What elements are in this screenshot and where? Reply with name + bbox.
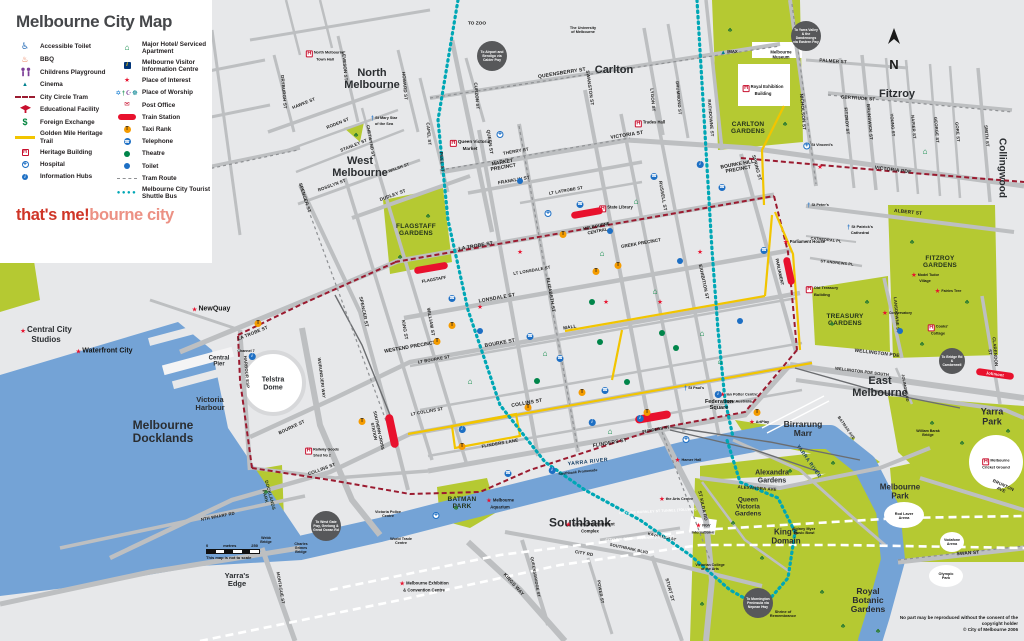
star-icon: ★ (882, 312, 888, 316)
direction-bubble-to-mornington-peninsula-via-nepean-hwy: To Mornington Peninsula via Nepean Hwy (743, 588, 773, 618)
tree-icon: ♣ (454, 497, 459, 515)
legend-item-label: Accessible Toilet (40, 43, 91, 50)
street-label-king-st: KING ST (400, 320, 408, 340)
legend-item-cinema: ▲Cinema (14, 81, 110, 90)
telephone-icon: ☎ (577, 192, 584, 210)
district-label-collingwood: Collingwood (996, 138, 1007, 198)
taxi-rank-icon: T (525, 395, 532, 413)
station-label-flinders-st: Flinders St (642, 425, 670, 434)
legend-item-post-office: ✉Post Office (116, 101, 212, 110)
direction-bubble-to-west-gate-fwy-geelong-great-ocean-rd: To West Gate Fwy, Geelong & Great Ocean … (311, 511, 341, 541)
place-of-interest-icon: ★ (817, 156, 823, 174)
legend-item-label: BBQ (40, 56, 54, 63)
district-label-alexandra-gardens: Alexandra Gardens (755, 469, 789, 484)
thats-melbourne-logo: that's me!bourne city (16, 206, 174, 225)
tree-icon: ♣ (930, 412, 935, 430)
poi-label-melbourne-cricket-ground: HMelbourne Cricket Ground (982, 458, 1010, 469)
park-label-batman-park: Batman Park (448, 496, 477, 510)
direction-bubble-to-yarra-valley-the-dandenongs-via-easte: To Yarra Valley & the Dandenongs via Eas… (791, 21, 821, 51)
street-label-power-st: POWER ST (596, 580, 605, 604)
tree-icon: ♣ (264, 481, 269, 499)
street-label-lt-lonsdale-st: LT LONSDALE ST (513, 266, 551, 277)
train-station-pill-flagstaff (414, 262, 449, 275)
toilet-icon (517, 171, 523, 189)
station-label-southern-cross-station: Southern Cross Station (367, 411, 384, 452)
poi-label-railway-goods-shed-no-2: HRailway Goods Shed No 2 (305, 448, 339, 459)
district-label-central-pier: Central Pier (209, 356, 230, 369)
poi-label-shrine-of-remembrance: Shrine of Remembrance (770, 610, 796, 618)
legend-item-educational-facility: Educational Facility (14, 105, 110, 114)
legend-item-label: Major Hotel/ Serviced Apartment (142, 41, 212, 55)
church-icon: † (807, 204, 810, 208)
tree-icon: ♣ (731, 512, 736, 530)
telephone-icon: ☎ (651, 164, 658, 182)
hospital-icon: ✚ (433, 503, 440, 521)
legend-item-major-hotel-serviced-apartment: ⌂Major Hotel/ Serviced Apartment (116, 41, 212, 55)
taxi-rank-icon: T (593, 259, 600, 277)
information-icon: i (549, 458, 556, 476)
legend-item-label: Educational Facility (40, 106, 99, 113)
street-label-smith-st: SMITH ST (983, 125, 990, 147)
street-label-franklin-st: FRANKLIN ST (498, 176, 531, 186)
tree-icon: ♣ (830, 313, 835, 331)
star-icon: ★ (659, 498, 665, 502)
legend-item-label: Cinema (40, 81, 63, 88)
tree-icon: ♣ (354, 124, 359, 142)
street-label-st-andrews-pl: ST ANDREWS PL (820, 259, 853, 267)
street-label-southbank-blvd: SOUTHBANK BLVD (609, 543, 648, 555)
bbq-icon: ♨ (14, 55, 36, 64)
tree-icon: ♣ (876, 620, 881, 638)
hotel-icon: ⌂ (600, 243, 605, 261)
taxi-rank-icon: T (255, 311, 262, 329)
h-icon: H (928, 325, 935, 329)
district-label-yarra-park: Yarra Park (981, 407, 1004, 426)
street-label-rosslyn-st: ROSSLYN ST (317, 179, 346, 193)
street-label-lonsdale-st: LONSDALE ST (478, 293, 515, 305)
logo-part1: that's me! (16, 206, 89, 224)
direction-bubble-to-bridge-rd-camberwell: To Bridge Rd & Camberwell (939, 348, 965, 374)
street-label-la-trobe-st: LA TROBE ST (458, 241, 493, 252)
legend-item-place-of-interest: ★Place of Interest (116, 76, 212, 85)
street-label-victoria-pde: VICTORIA PDE (874, 166, 911, 176)
poi-label-ngv-international: ★NGV International (692, 524, 715, 535)
legend-item-city-circle-tram: City Circle Tram (14, 93, 110, 102)
telephone-icon: ☎ (505, 461, 512, 479)
legend-item-bbq: ♨BBQ (14, 55, 110, 64)
street-label-bourke-st: BOURKE ST (484, 339, 515, 350)
poi-label-vodafone-arena: Vodafone Arena (944, 539, 960, 547)
tram-route-icon (116, 178, 138, 179)
legend-item-heritage-building: HHeritage Building (14, 148, 110, 157)
hosp-icon: ✚ (803, 144, 810, 148)
tree-icon: ♣ (920, 333, 925, 351)
toilet-icon (677, 251, 683, 269)
poi-label-world-trade-centre: World Trade Centre (390, 537, 412, 545)
poi-label-victorian-college-of-the-arts: Victorian College of the Arts (695, 564, 724, 572)
information-icon: i (459, 417, 466, 435)
legend-item-label: Childrens Playground (40, 69, 105, 76)
street-label-therry-st: THERRY ST (503, 147, 529, 156)
street-label-george-st: GEORGE ST (933, 117, 940, 144)
train-station-pill-southern-cross-station (385, 414, 400, 449)
street-label-hawke-st: HAWKE ST (292, 97, 316, 111)
street-label-queensberry-st: QUEENSBERRY ST (538, 68, 586, 81)
phone-icon: ☎ (116, 138, 138, 145)
street-label-howard-st: HOWARD ST (400, 72, 407, 100)
street-label-nicholson-st: NICHOLSON ST (798, 94, 806, 131)
hospital-icon: ✚ (14, 161, 36, 168)
tree-icon: ♣ (865, 291, 870, 309)
telephone-icon: ☎ (719, 175, 726, 193)
poi-label-melbourne-aquarium: ★Melbourne Aquarium (486, 498, 514, 509)
scale-bar-graphic (206, 549, 260, 554)
street-label-lygon-st: LYGON ST (649, 88, 656, 112)
district-label-west-melbourne: West Melbourne (332, 156, 388, 180)
legend-item-foreign-exchange: $Foreign Exchange (14, 117, 110, 127)
poi-label-royal-exhibition-building: HRoyal Exhibition Building (743, 85, 784, 97)
precinct-label-greek-precinct: GREEK PRECINCT (621, 238, 661, 250)
telephone-icon: ☎ (602, 378, 609, 396)
park-label-fitzroy-gardens: Fitzroy Gardens (923, 255, 957, 269)
poi-label-victoria-police-centre: Victoria Police Centre (375, 510, 401, 518)
street-label-queensbridge-st: QUEENSBRIDGE ST (529, 556, 540, 597)
train-station-pill-parliament (783, 257, 796, 286)
station-label-flagstaff: Flagstaff (422, 276, 447, 285)
telephone-icon: ☎ (527, 324, 534, 342)
scale-units: metres (223, 543, 236, 548)
legend-item-label: Post Office (142, 102, 175, 109)
poi-label-hamer-hall: ★Hamer Hall (675, 458, 702, 465)
street-label-exhibition-st: EXHIBITION ST (697, 264, 709, 300)
poi-label-crown-entertainment-complex: ★Crown Entertainment Complex (565, 522, 614, 533)
theatre-icon (589, 292, 595, 310)
legend-item-melbourne-visitor-information-centre: iMelbourne Visitor Information Centre (116, 59, 212, 73)
legend-item-melbourne-city-tourist-shuttle-bus: ●●●●Melbourne City Tourist Shuttle Bus (116, 186, 212, 200)
legend-item-accessible-toilet: ♿Accessible Toilet (14, 41, 110, 52)
legend-item-label: Tram Route (142, 175, 177, 182)
theatre-icon (659, 323, 665, 341)
street-label-flinders-st: FLINDERS ST (593, 438, 628, 449)
telephone-icon: ☎ (761, 238, 768, 256)
information-icon: i (589, 410, 596, 428)
park-label-carlton-gardens: Carlton Gardens (731, 121, 765, 135)
poi-label-melbourne-museum: Melbourne Museum (770, 50, 791, 59)
legend-item-place-of-worship: ✡†☪☸Place of Worship (116, 89, 212, 98)
legend-columns: ♿Accessible Toilet♨BBQChildrens Playgrou… (14, 41, 212, 200)
street-label-mall: MALL (563, 324, 577, 331)
poi-label-william-barak-bridge: William Barak Bridge (916, 430, 940, 438)
compass-arrow-icon (885, 28, 903, 54)
poi-label-conservatory: ★Conservatory (882, 311, 912, 318)
train-icon (116, 114, 138, 120)
forex-icon: $ (14, 117, 36, 127)
district-label-queen-victoria-gardens: Queen Victoria Gardens (735, 496, 761, 517)
legend-item-theatre: Theatre (116, 149, 212, 158)
church-icon: † (684, 387, 687, 391)
street-label-flinders-lane: FLINDERS LANE (481, 438, 518, 449)
compass-north-label: N (885, 57, 903, 72)
legend-item-label: Taxi Rank (142, 126, 171, 133)
street-label-alexandra-ave: ALEXANDRA AVE (737, 485, 776, 492)
star-icon: ★ (75, 349, 81, 356)
place-of-interest-icon: ★ (477, 296, 483, 314)
district-label-east-melbourne: East Melbourne (852, 376, 908, 400)
star-icon: ★ (911, 274, 917, 278)
hospital-icon: ✚ (545, 201, 552, 219)
water-label-yarra-river: YARRA RIVER (795, 444, 822, 479)
poi-label-webb-bridge: Webb Bridge (260, 537, 271, 545)
tree-icon: ♣ (426, 205, 431, 223)
district-label-royal-botanic-gardens: Royal Botanic Gardens (851, 587, 886, 615)
poi-label-parliament-house: ★Parliament House (783, 240, 825, 247)
information-icon: i (249, 344, 256, 362)
taxi-rank-icon: T (754, 400, 761, 418)
legend-item-label: City Circle Tram (40, 94, 88, 101)
tree-icon: ♣ (728, 19, 733, 37)
information-icon: i (715, 382, 722, 400)
water-label-yarra-river: YARRA RIVER (568, 458, 609, 468)
street-label-batman-ave: BATMAN AVE (836, 416, 855, 441)
poi-label-queen-victoria-market: HQueen Victoria Market (450, 140, 490, 152)
scale-zero: 0 (206, 543, 208, 548)
poi-label-st-vincent-s: ✚St Vincent's (803, 143, 833, 150)
tree-icon: ♣ (1006, 420, 1011, 438)
legend-item-information-hubs: iInformation Hubs (14, 172, 110, 181)
legend-item-label: Golden Mile Heritage Trail (40, 130, 110, 144)
street-label-dryburgh-st: DRYBURGH ST (279, 75, 287, 109)
compass: N (885, 28, 903, 72)
tree-icon: ♣ (965, 291, 970, 309)
copyright-notice: No part may be reproduced without the co… (898, 615, 1018, 633)
street-label-brunswick-st: BRUNSWICK ST (865, 104, 873, 140)
street-label-lt-bourke-st: LT BOURKE ST (418, 355, 451, 365)
hotel-icon: ⌂ (468, 371, 473, 389)
theatre-icon (597, 332, 603, 350)
h-icon: H (306, 51, 313, 55)
legend-item-label: Foreign Exchange (40, 119, 95, 126)
logo-part2: bourne city (89, 206, 174, 224)
road-label-citylink-burnley-st-tunnel-tollway: CITYLINK BURNLEY ST TUNNEL (TOLLWAY) (619, 508, 697, 516)
playground-icon (14, 67, 36, 77)
street-label-kings-way: KINGS WAY (502, 573, 525, 598)
street-label-russell-st: RUSSELL ST (657, 181, 667, 211)
street-label-nth-wharf-rd: NTH WHARF RD (201, 511, 236, 522)
street-label-city-rd: CITY RD (574, 550, 593, 558)
poi-label-north-melbourne-town-hall: HNorth Melbourne Town Hall (306, 50, 344, 61)
star-icon: ★ (399, 581, 405, 586)
legend-item-label: Telephone (142, 138, 173, 145)
poi-label-st-mary-star-of-the-sea: †St Mary Star of the Sea (371, 116, 398, 126)
shuttle-icon: ●●●● (116, 190, 138, 196)
h-icon: H (806, 286, 813, 291)
poi-label-waterfront-city: ★Waterfront City (75, 348, 132, 357)
tree-icon: ♣ (820, 581, 825, 599)
legend-item-hospital: ✚Hospital (14, 160, 110, 169)
star-icon: ★ (565, 522, 571, 527)
poi-label-charles-grimes-bridge: Charles Grimes Bridge (294, 543, 307, 555)
street-label-roden-st: RODEN ST (326, 117, 350, 130)
precinct-label-westend-precinct: WESTEND PRECINCT (384, 341, 436, 355)
hotel-icon: ⌂ (718, 351, 723, 369)
hotel-icon: ⌂ (116, 44, 138, 52)
legend-column-right: ⌂Major Hotel/ Serviced ApartmentiMelbour… (116, 41, 212, 200)
street-label-rathdowne-st: RATHDOWNE ST (706, 99, 714, 137)
poi-label-imax: ▲IMAX (720, 50, 737, 56)
star-icon: ★ (20, 326, 26, 335)
taxi-rank-icon: T (579, 380, 586, 398)
street-label-gertrude-st: GERTRUDE ST (841, 95, 876, 102)
poi-label-state-library: HState Library (599, 205, 633, 212)
golden-mile-icon (14, 136, 36, 139)
scale-max: 250 (251, 543, 258, 548)
tree-icon: ♣ (910, 231, 915, 249)
hotel-icon: ⌂ (634, 191, 639, 209)
place-of-interest-icon: ★ (657, 291, 663, 309)
district-label-central-city-studios: ★Central City Studios (20, 326, 72, 344)
precinct-label-to-zoo: TO ZOO (468, 21, 486, 26)
poi-label-the-arts-centre: ★the Arts Centre (659, 497, 693, 504)
poi-label-newquay: ★NewQuay (192, 306, 231, 315)
tree-icon: ♣ (700, 593, 705, 611)
park-label-flagstaff-gardens: Flagstaff Gardens (396, 223, 436, 237)
district-label-yarra-s-edge: Yarra's Edge (225, 572, 250, 588)
street-label-bourke-st: BOURKE ST (278, 420, 306, 436)
educational-icon (14, 105, 36, 113)
legend-item-toilet: Toilet (116, 162, 212, 171)
tree-icon: ♣ (960, 432, 965, 450)
legend-item-label: Toilet (142, 163, 158, 170)
district-label-melbourne-docklands: Melbourne Docklands (133, 419, 194, 445)
legend-panel: Melbourne City Map ♿Accessible Toilet♨BB… (0, 0, 212, 263)
star-icon: ★ (783, 240, 789, 245)
legend-item-label: Melbourne Visitor Information Centre (142, 59, 212, 73)
taxi-rank-icon: T (560, 222, 567, 240)
direction-bubble-to-airport-and-bendigo-via-calder-fwy: To Airport and Bendigo via Calder Fwy (477, 41, 507, 71)
star-icon: ★ (675, 459, 681, 463)
poi-label-cooks-cottage: HCooks' Cottage (928, 324, 949, 335)
legend-item-label: Train Station (142, 114, 180, 121)
place-of-interest-icon: ★ (697, 241, 703, 259)
district-label-fitzroy: Fitzroy (879, 89, 915, 101)
cine-icon: ▲ (720, 50, 726, 55)
toilet-icon (116, 163, 138, 169)
street-label-gore-st: GORE ST (954, 122, 960, 142)
h-icon: H (635, 120, 642, 125)
legend-item-telephone: ☎Telephone (116, 137, 212, 146)
district-label-north-melbourne: North Melbourne (344, 68, 400, 92)
street-label-young-st: YOUNG ST (889, 113, 896, 136)
poi-label-sidney-myer-music-bowl: Sidney Myer Music Bowl (793, 527, 815, 535)
street-label-swanston-st: SWANSTON ST (584, 70, 594, 106)
street-label-capel-st: CAPEL ST (425, 122, 432, 145)
wheelchair-icon: ♿ (14, 41, 36, 52)
street-label-drummond-st: DRUMMOND ST (674, 81, 681, 115)
road-label-citylink-domain-tunnel-tollway: CITYLINK DOMAIN TUNNEL (TOLLWAY) (605, 535, 674, 542)
legend-item-taxi-rank: TTaxi Rank (116, 125, 212, 134)
street-label-dudley-st: DUDLEY ST (379, 189, 406, 203)
poi-label-melbourne-exhibition-convention-centre: ★Melbourne Exhibition & Convention Centr… (399, 581, 448, 592)
precinct-label-bourke-hill-precinct: BOURKE HILL PRECINCT (720, 160, 756, 177)
toilet-icon (897, 321, 903, 339)
street-label-napier-st: NAPIER ST (910, 115, 917, 139)
scale-note: This map is not to scale (206, 555, 260, 560)
visitor-centre-icon: i (116, 62, 138, 69)
star-icon: ★ (935, 290, 941, 294)
h-icon: H (743, 85, 750, 90)
street-label-montague-st: MONTAGUE ST (275, 572, 285, 605)
taxi-rank-icon: T (449, 313, 456, 331)
district-label-melbourne-park: Melbourne Park (880, 483, 920, 500)
telephone-icon: ☎ (557, 346, 564, 364)
street-label-clarendon-st: CLARENDON ST (986, 336, 998, 369)
tree-icon: ♣ (783, 113, 788, 131)
hospital-icon: ✚ (497, 122, 504, 140)
hotel-icon: ⌂ (608, 421, 613, 439)
poi-label-the-university-of-melbourne: The University of Melbourne (570, 26, 596, 34)
street-label-walsh-st: WALSH ST (388, 162, 410, 174)
h-icon: H (450, 140, 457, 145)
information-icon: i (637, 406, 644, 424)
legend-column-left: ♿Accessible Toilet♨BBQChildrens Playgrou… (14, 41, 110, 200)
district-label-carlton: Carlton (595, 65, 634, 77)
tree-icon: ♣ (831, 452, 836, 470)
street-label-wurundjeri-way: WURUNDJERI WAY (316, 357, 325, 398)
precinct-label-market-precinct: MARKET PRECINCT (489, 158, 516, 173)
poi-label-st-paul-s: †St Paul's (684, 386, 704, 392)
information-icon: i (697, 152, 704, 170)
melbourne-city-map-page: Melbourne City Map ♿Accessible Toilet♨BB… (0, 0, 1024, 641)
poi-label-old-treasury-building: HOld Treasury Building (806, 286, 838, 298)
hotel-icon: ⌂ (923, 141, 928, 159)
train-station-pill-jolimont: Jolimont (976, 368, 1015, 380)
telephone-icon: ☎ (449, 286, 456, 304)
scale-bar: 0 metres 250 This map is not to scale (206, 543, 260, 560)
street-label-palmer-st: PALMER ST (819, 59, 847, 66)
theatre-icon (673, 338, 679, 356)
legend-item-label: Information Hubs (40, 173, 92, 180)
tree-icon: ♣ (841, 615, 846, 633)
street-label-peel-st: PEEL ST (438, 152, 445, 172)
poi-label-model-tudor-village: ★Model Tudor Village (911, 273, 939, 283)
district-label-victoria-harbour: Victoria Harbour (195, 396, 224, 412)
church-icon: † (847, 225, 850, 230)
legend-item-tram-route: Tram Route (116, 174, 212, 183)
h-icon: H (305, 448, 312, 452)
district-label-telstra-dome: Telstra Dome (262, 376, 284, 391)
poi-label-artplay: ★ArtPlay (749, 420, 769, 427)
street-label-st-kilda-rd: ST KILDA RD (696, 491, 707, 522)
legend-item-childrens-playground: Childrens Playground (14, 67, 110, 77)
street-label-wellington-pde: WELLINGTON PDE (854, 349, 900, 360)
street-label-spencer-st: SPENCER ST (297, 183, 311, 214)
taxi-rank-icon: T (615, 253, 622, 271)
info-hub-icon: i (14, 174, 36, 181)
legend-item-label: Place of Interest (142, 77, 191, 84)
star-icon: ★ (192, 307, 198, 314)
toilet-icon (737, 311, 743, 329)
poi-label-rod-laver-arena: Rod Laver Arena (895, 512, 914, 520)
street-label-fitzroy-st: FITZROY ST (842, 107, 849, 134)
hotel-icon: ⌂ (543, 343, 548, 361)
district-label-birrarung-marr: Birrarung Marr (784, 420, 823, 438)
church-icon: † (371, 117, 374, 121)
taxi-rank-icon: T (359, 409, 366, 427)
legend-item-label: Heritage Building (40, 149, 92, 156)
place-of-interest-icon: ★ (517, 241, 523, 259)
tree-icon: ♣ (760, 547, 765, 565)
worship-icon: ✡†☪☸ (116, 89, 138, 97)
